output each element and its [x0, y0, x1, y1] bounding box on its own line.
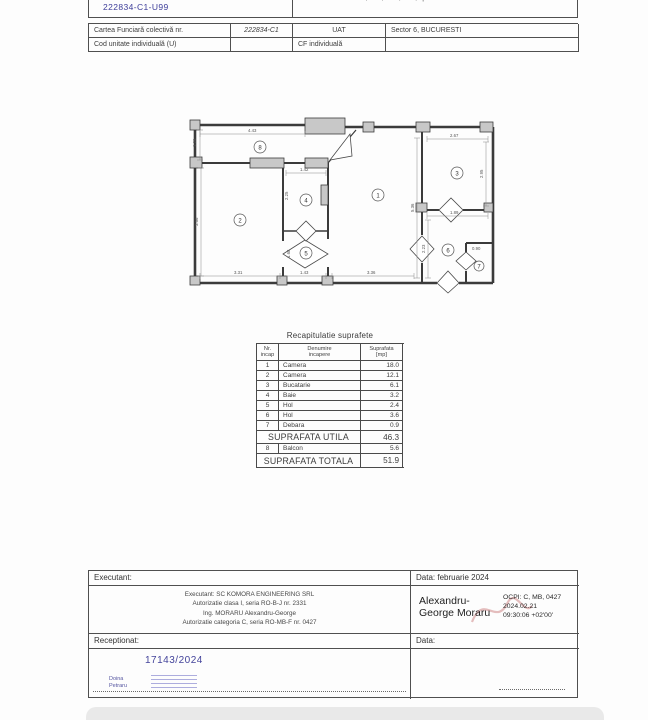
col-header-name: Denumireincapere	[279, 344, 361, 361]
uat-value: Sector 6, BUCURESTI	[386, 24, 579, 38]
dimension-label: 2.25	[284, 191, 289, 200]
table-row: 8	[257, 444, 279, 454]
suprafata-totala-label: SUPRAFATA TOTALA	[257, 454, 361, 467]
room-number-5: 5	[300, 247, 312, 259]
dimension-label: 4.43	[248, 128, 257, 133]
executant-details: Executant: SC KOMORA ENGINEERING SRL Aut…	[89, 586, 410, 628]
dimension-label: 1.42	[300, 167, 309, 172]
room-number-8: 8	[254, 141, 266, 153]
header-id-table: 222834-C1-U99 Bul. Uverturii nr. 51-55, …	[88, 0, 578, 18]
stamp-fine-print	[151, 675, 197, 688]
receptionat-date: Data:	[411, 634, 579, 645]
signature-details: OCPI: C, MB, 0427 2024.02.21 09:30:06 +0…	[503, 593, 561, 621]
room-number-2: 2	[234, 214, 246, 226]
address-cell: Bul. Uverturii nr. 51-55, bl. 2, sc. 2, …	[292, 0, 578, 18]
signature-dotted-line	[93, 691, 406, 692]
unit-id-cell: 222834-C1-U99	[88, 0, 292, 18]
room-number-6: 6	[442, 244, 454, 256]
receptionat-label: Receptionat:	[89, 634, 410, 645]
col-header-area: Suprafata[mp]	[361, 344, 403, 361]
table-row: 5	[257, 401, 279, 411]
dimension-label: 1.89	[450, 210, 459, 215]
dimension-label: 3.36	[367, 270, 376, 275]
area-summary-section: Recapitulatie suprafete Nr.incap Denumir…	[256, 331, 404, 468]
dimension-label: 5.36	[410, 203, 415, 212]
uat-label: UAT	[293, 24, 386, 38]
signature-block: Executant: Data: februarie 2024 Executan…	[88, 570, 578, 698]
dimension-label: 1.68	[286, 249, 291, 258]
date-dotted-line	[499, 689, 565, 690]
col-header-nr: Nr.incap	[257, 344, 279, 361]
registration-number: 17143/2024	[145, 655, 203, 666]
room-number-3: 3	[451, 167, 463, 179]
room-number-7: 7	[474, 261, 484, 271]
suprafata-totala-value: 51.9	[361, 454, 403, 467]
viewer-bottom-bar	[86, 707, 604, 720]
wall-pier	[305, 118, 345, 134]
cadastral-document-page: 222834-C1-U99 Bul. Uverturii nr. 51-55, …	[0, 0, 648, 720]
receiver-stamp: Doina Petraru	[109, 676, 127, 690]
header-info-table: Cartea Funciară colectivă nr. 222834-C1 …	[88, 23, 578, 52]
bathroom-door	[296, 221, 316, 241]
room-number-4: 4	[300, 194, 312, 206]
dimension-label: 2.23	[421, 244, 426, 253]
recap-title: Recapitulatie suprafete	[256, 331, 404, 340]
dimension-label: 3.31	[234, 270, 243, 275]
entrance-door	[437, 271, 459, 293]
table-row: 1	[257, 361, 279, 371]
balcony-door	[330, 134, 352, 160]
dimension-label: 0.90	[472, 246, 481, 251]
table-row: 7	[257, 421, 279, 431]
dimension-label: 1.43	[300, 270, 309, 275]
storage-door	[456, 252, 476, 270]
cf-individuala-label: CF individuală	[293, 38, 386, 52]
area-summary-table: Nr.incap Denumireincapere Suprafata[mp] …	[256, 343, 404, 468]
dimension-label: 1.26	[192, 138, 197, 147]
table-row: 6	[257, 411, 279, 421]
room-number-1: 1	[372, 189, 384, 201]
executant-date: Data: februarie 2024	[411, 571, 579, 582]
table-row: 2	[257, 371, 279, 381]
dimension-label: 3.66	[194, 217, 199, 226]
table-row: 3	[257, 381, 279, 391]
signer-name: Alexandru- George Moraru	[419, 595, 490, 620]
cod-unitate-label: Cod unitate individuală (U)	[89, 38, 231, 52]
dimension-label: 2.67	[450, 133, 459, 138]
suprafata-utila-value: 46.3	[361, 431, 403, 444]
address-text: Bul. Uverturii nr. 51-55, bl. 2, sc. 2, …	[301, 0, 437, 2]
cod-unitate-value	[231, 38, 293, 52]
floor-plan: 4.43 1.26 1.42 2.25 2.67 2.95 5.36 3.66 …	[100, 100, 520, 300]
cartea-funciara-value: 222834-C1	[231, 24, 293, 38]
suprafata-utila-label: SUPRAFATA UTILA	[257, 431, 361, 444]
cf-individuala-value	[386, 38, 579, 52]
executant-label: Executant:	[89, 571, 410, 582]
unit-id: 222834-C1-U99	[103, 2, 169, 12]
table-row: 4	[257, 391, 279, 401]
cartea-funciara-label: Cartea Funciară colectivă nr.	[89, 24, 231, 38]
dimension-label: 2.95	[479, 169, 484, 178]
